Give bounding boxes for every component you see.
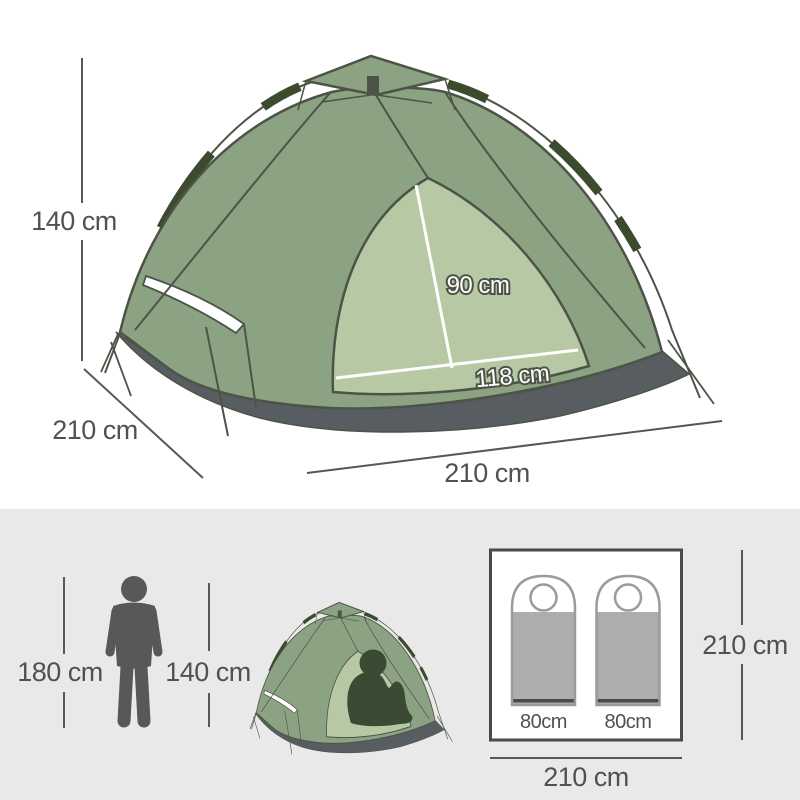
person-leg-left xyxy=(124,667,127,721)
person-height-label: 180 cm xyxy=(17,657,103,687)
bag-left-width-label: 80cm xyxy=(520,711,567,733)
bag-hood-circle xyxy=(615,585,641,611)
bag-strip xyxy=(513,699,574,703)
tent-depth-label: 210 cm xyxy=(52,415,138,445)
door-height-label: 90 cm xyxy=(447,272,510,299)
large-tent xyxy=(101,56,714,436)
person-leg-right xyxy=(141,667,144,721)
product-dimension-diagram: { "upper": { "height": "140 cm", "depth"… xyxy=(0,0,800,800)
sleeping-bag-left-icon xyxy=(512,576,575,705)
person-icon xyxy=(110,576,158,721)
bag-body xyxy=(597,612,659,705)
tent-width-label: 210 cm xyxy=(444,458,530,488)
small-tent-height-label: 140 cm xyxy=(165,657,251,687)
person-head xyxy=(121,576,147,602)
tent-dimension-figure: 90 cm 118 cm 140 cm 210 cm 210 cm xyxy=(0,0,800,509)
bag-body xyxy=(513,612,575,705)
person-arm-left xyxy=(110,611,116,652)
person-arm-right xyxy=(152,611,158,652)
sleeping-bag-right-icon xyxy=(597,576,660,705)
bag-right-width-label: 80cm xyxy=(605,711,652,733)
plan-width-label: 210 cm xyxy=(543,762,629,792)
bag-hood-circle xyxy=(531,585,557,611)
upper-panel: 90 cm 118 cm 140 cm 210 cm 210 cm xyxy=(0,0,800,509)
bag-strip xyxy=(598,699,659,703)
small-tent xyxy=(250,602,452,754)
lower-panel: 180 cm 140 cm 80cm 80cm 210 cm 210 cm xyxy=(0,509,800,800)
tent-height-label: 140 cm xyxy=(31,206,117,236)
plan-depth-label: 210 cm xyxy=(702,630,788,660)
scale-and-floorplan-figure: 180 cm 140 cm 80cm 80cm 210 cm 210 cm xyxy=(0,509,800,800)
